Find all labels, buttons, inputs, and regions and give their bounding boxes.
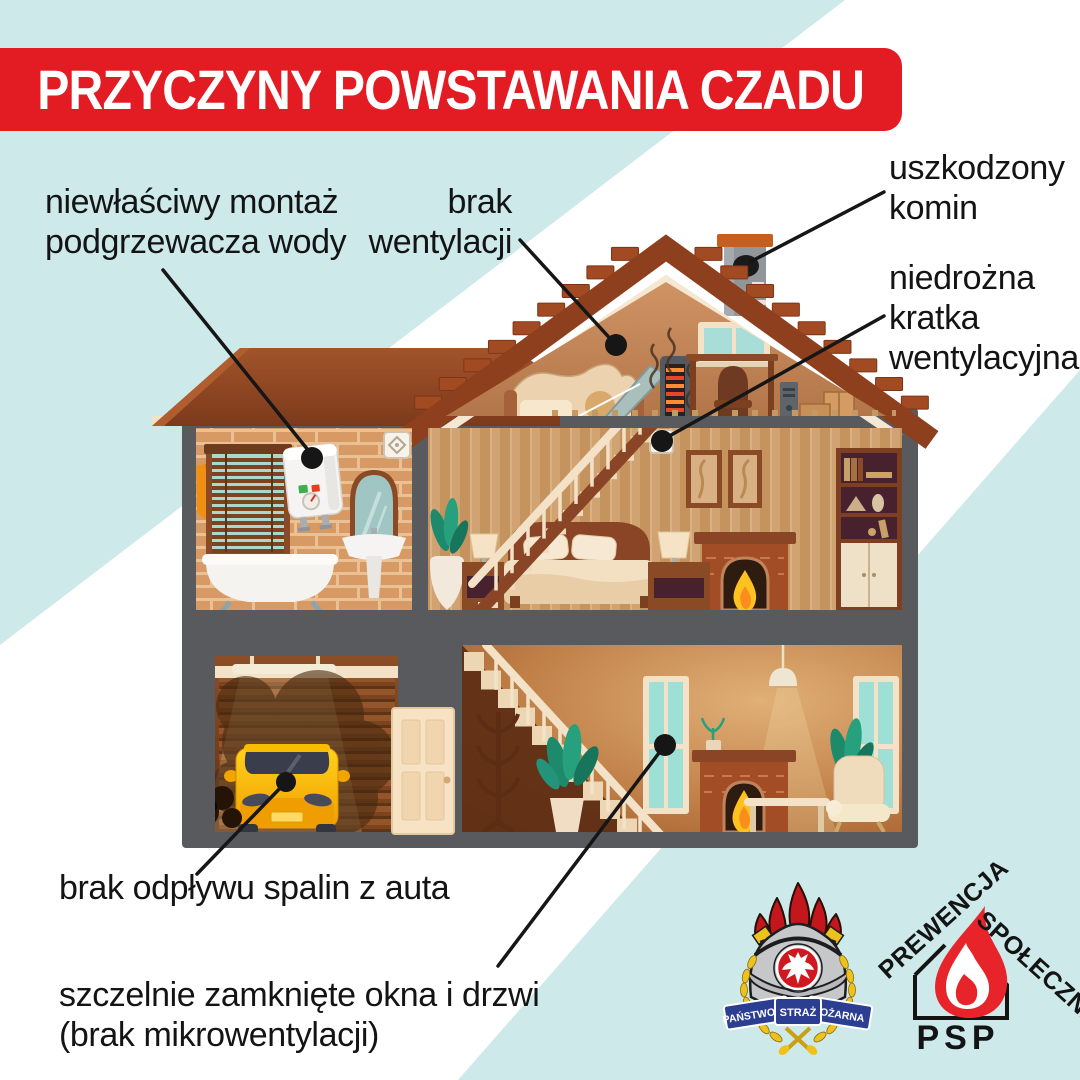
living-room bbox=[462, 645, 902, 856]
label-no-ventilation: brak wentylacji bbox=[369, 182, 512, 262]
garage bbox=[187, 656, 400, 834]
callout-dot bbox=[651, 430, 673, 452]
door-knob bbox=[444, 777, 451, 784]
label-blocked-grille: niedrożna kratka wentylacyjna bbox=[889, 258, 1079, 378]
callout-dot bbox=[301, 447, 323, 469]
label-car-exhaust: brak odpływu spalin z auta bbox=[59, 868, 449, 908]
callout-dot bbox=[605, 334, 627, 356]
prevention-acronym: PSP bbox=[916, 1019, 999, 1057]
bookshelf-wardrobe bbox=[836, 448, 902, 610]
interior-door bbox=[392, 708, 454, 834]
callout-dot bbox=[654, 734, 676, 756]
chimney-cap bbox=[717, 234, 773, 247]
vent-grille-icon bbox=[384, 432, 410, 458]
infographic-poster: { "title": "PRZYCZYNY POWSTAWANIA CZADU"… bbox=[0, 0, 1080, 1080]
window-blinds bbox=[204, 444, 292, 558]
leader-line-chimney bbox=[750, 192, 884, 262]
armchair bbox=[826, 756, 890, 832]
prevention-logo: PREWENCJA SPOŁECZNA PSP bbox=[873, 854, 1080, 1057]
callout-dot bbox=[276, 772, 296, 792]
crest-torches-icon bbox=[777, 1028, 819, 1057]
label-damaged-chimney: uszkodzony komin bbox=[889, 148, 1065, 228]
label-sealed-windows: szczelnie zamknięte okna i drzwi (brak m… bbox=[59, 975, 539, 1055]
label-water-heater: niewłaściwy montaż podgrzewacza wody bbox=[45, 182, 346, 262]
psp-crest-logo: PAŃSTWOWA POŻARNA STRAŻ bbox=[721, 883, 873, 1057]
ribbon-text-center: STRAŻ bbox=[780, 1006, 817, 1019]
